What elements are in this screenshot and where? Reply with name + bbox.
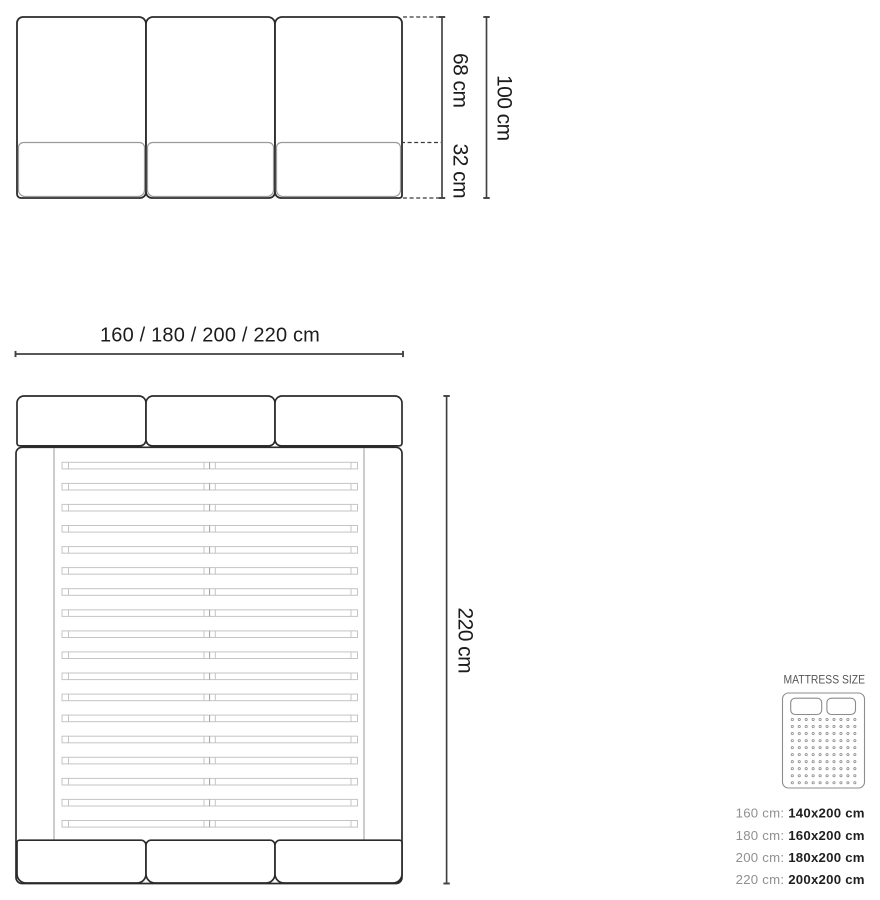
svg-text:MATTRESS SIZE: MATTRESS SIZE bbox=[784, 673, 866, 687]
svg-text:220 cm: 200x200 cm: 220 cm: 200x200 cm bbox=[736, 872, 865, 887]
svg-text:200 cm: 180x200 cm: 200 cm: 180x200 cm bbox=[736, 850, 865, 865]
svg-text:180 cm: 160x200 cm: 180 cm: 160x200 cm bbox=[736, 828, 865, 843]
svg-text:160 / 180 / 200 / 220 cm: 160 / 180 / 200 / 220 cm bbox=[100, 325, 320, 347]
svg-text:32 cm: 32 cm bbox=[448, 144, 471, 198]
svg-text:160 cm: 140x200 cm: 160 cm: 140x200 cm bbox=[736, 806, 865, 821]
svg-text:220 cm: 220 cm bbox=[453, 608, 476, 674]
svg-text:100 cm: 100 cm bbox=[492, 75, 515, 141]
svg-text:68 cm: 68 cm bbox=[448, 53, 471, 107]
